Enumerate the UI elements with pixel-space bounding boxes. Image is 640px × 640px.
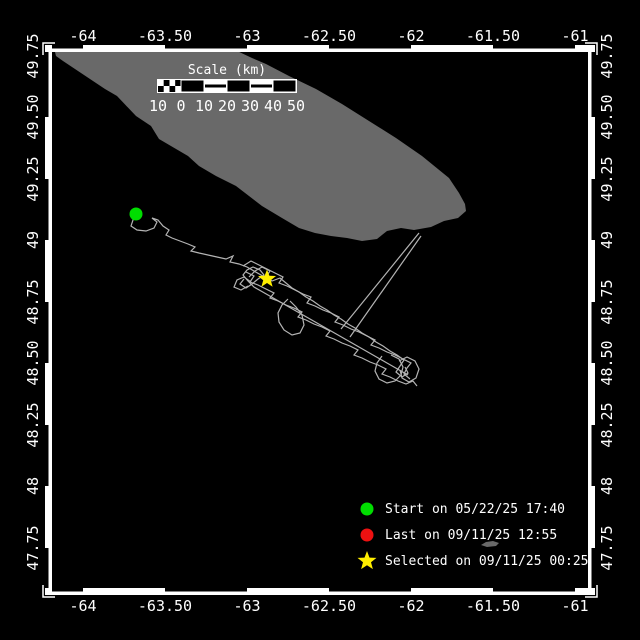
lat-label-left: 48.25	[26, 402, 40, 447]
lat-label-left: 47.75	[26, 525, 40, 570]
lat-label-left: 49.75	[26, 33, 40, 78]
lat-label-right: 48.25	[600, 402, 614, 447]
lat-label-right: 47.75	[600, 525, 614, 570]
scalebar-label: 40	[264, 99, 282, 113]
lat-label-right: 48.50	[600, 340, 614, 385]
lon-label-top: -63.50	[138, 29, 192, 43]
lat-label-left: 48	[26, 477, 40, 495]
lat-label-right: 49.50	[600, 94, 614, 139]
scalebar-label: 50	[287, 99, 305, 113]
lat-label-right: 48	[600, 477, 614, 495]
lon-label-bottom: -61	[561, 599, 588, 613]
lat-label-left: 48.75	[26, 279, 40, 324]
last-marker-icon	[356, 524, 378, 546]
scalebar-label: 20	[218, 99, 236, 113]
lat-label-left: 49	[26, 231, 40, 249]
lon-label-top: -62.50	[302, 29, 356, 43]
lat-label-left: 49.50	[26, 94, 40, 139]
scalebar-label: 0	[176, 99, 185, 113]
legend-row-start: Start on 05/22/25 17:40	[356, 496, 589, 522]
scalebar-title: Scale (km)	[188, 64, 266, 77]
lon-label-bottom: -64	[69, 599, 96, 613]
legend-start-label: Start on 05/22/25 17:40	[385, 502, 565, 517]
lon-label-top: -61	[561, 29, 588, 43]
selected-marker-icon	[356, 550, 378, 572]
scalebar-label: 10	[195, 99, 213, 113]
scalebar-label: 30	[241, 99, 259, 113]
lon-label-bottom: -62	[397, 599, 424, 613]
lat-label-left: 49.25	[26, 156, 40, 201]
scalebar-label: 10	[149, 99, 167, 113]
map-window: -64 -63.50 -63 -62.50 -62 -61.50 -61 -64…	[0, 0, 640, 640]
legend-row-selected: Selected on 09/11/25 00:25	[356, 548, 589, 574]
legend-last-label: Last on 09/11/25 12:55	[385, 528, 557, 543]
start-marker-icon	[356, 498, 378, 520]
legend: Start on 05/22/25 17:40 Last on 09/11/25…	[356, 496, 589, 574]
lon-label-bottom: -61.50	[466, 599, 520, 613]
lon-label-bottom: -63	[233, 599, 260, 613]
scalebar-graphic	[158, 80, 297, 93]
lat-label-left: 48.50	[26, 340, 40, 385]
lon-label-top: -61.50	[466, 29, 520, 43]
lat-label-right: 49.75	[600, 33, 614, 78]
start-point-marker[interactable]	[130, 208, 143, 221]
legend-selected-label: Selected on 09/11/25 00:25	[385, 554, 589, 569]
lat-label-right: 49	[600, 231, 614, 249]
lat-label-right: 48.75	[600, 279, 614, 324]
legend-row-last: Last on 09/11/25 12:55	[356, 522, 589, 548]
lon-label-bottom: -63.50	[138, 599, 192, 613]
lat-label-right: 49.25	[600, 156, 614, 201]
lon-label-top: -64	[69, 29, 96, 43]
lon-label-bottom: -62.50	[302, 599, 356, 613]
lon-label-top: -62	[397, 29, 424, 43]
lon-label-top: -63	[233, 29, 260, 43]
